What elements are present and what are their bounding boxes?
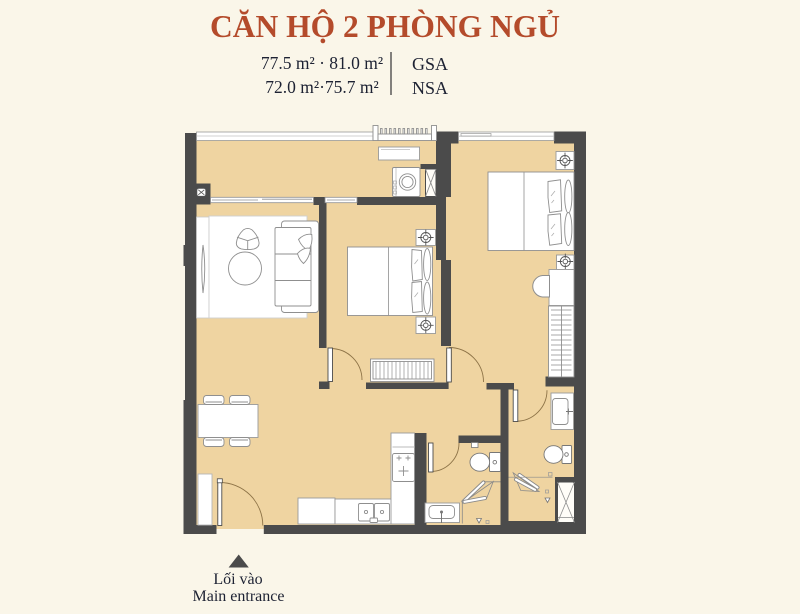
svg-text:NSA: NSA [412, 78, 448, 98]
svg-text:72.0 m²·75.7 m²: 72.0 m²·75.7 m² [265, 77, 379, 97]
svg-text:77.5 m² · 81.0 m²: 77.5 m² · 81.0 m² [261, 53, 383, 73]
svg-text:Main entrance: Main entrance [193, 588, 285, 605]
svg-text:Lối vào: Lối vào [213, 571, 262, 588]
svg-text:GSA: GSA [412, 54, 448, 74]
svg-text:CĂN HỘ 2 PHÒNG NGỦ: CĂN HỘ 2 PHÒNG NGỦ [210, 9, 560, 44]
